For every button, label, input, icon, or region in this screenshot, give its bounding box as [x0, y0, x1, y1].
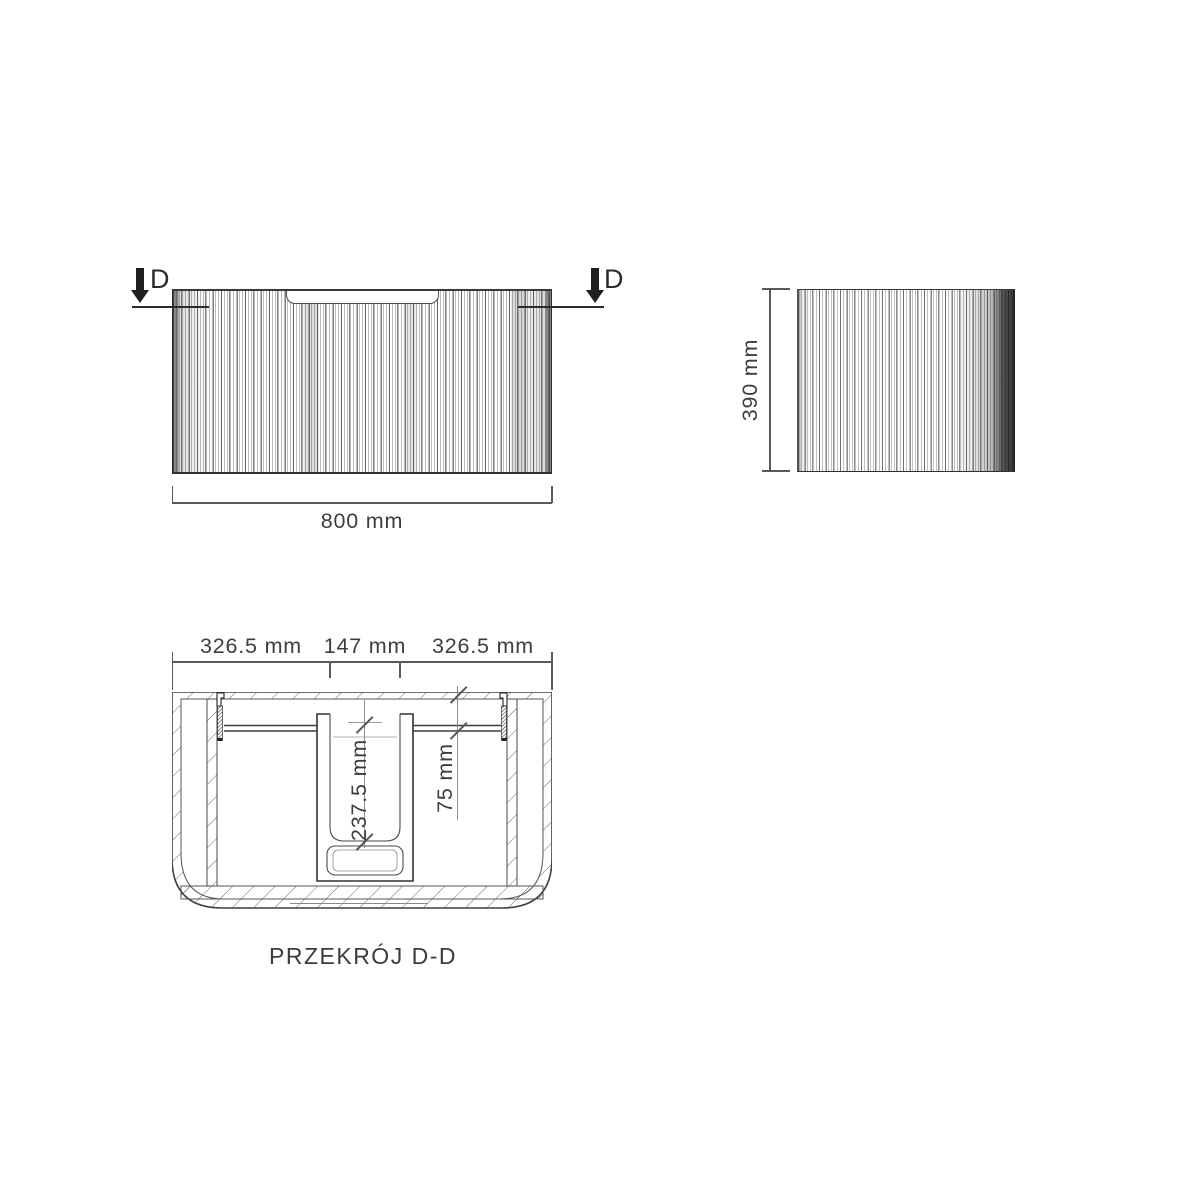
- side-view-fluted-panel: [797, 289, 1015, 472]
- dim-chain-tick-end-left: [172, 652, 174, 690]
- dim-chain-tick-mid-right: [399, 661, 401, 678]
- slide-foot-left: [218, 738, 223, 741]
- section-cut-arrowhead-icon: [586, 290, 604, 303]
- dim-75-line: [457, 686, 458, 820]
- dim-800-label: 800 mm: [262, 509, 462, 534]
- section-cut-line-left: [132, 306, 209, 308]
- slide-strip-right: [502, 706, 507, 740]
- slide-foot-right: [502, 738, 507, 741]
- slide-strip-left: [218, 706, 223, 740]
- section-title: PRZEKRÓJ D-D: [213, 943, 513, 970]
- dim-800-tick-left: [172, 486, 174, 503]
- dim-chain-line: [172, 661, 552, 663]
- section-marker-label-left: D: [150, 266, 170, 293]
- dim-390-tick-bottom: [762, 470, 790, 472]
- technical-drawing-page: D D 800 mm 390 mm: [0, 0, 1200, 1200]
- section-cut-arrowhead-icon: [131, 290, 149, 303]
- section-marker-label-right: D: [604, 266, 624, 293]
- front-view-fluted-panel: [172, 289, 552, 474]
- section-cut-arrow-icon: [136, 268, 144, 290]
- dim-237-label: 237.5 mm: [347, 736, 371, 844]
- dim-right-label: 326.5 mm: [403, 634, 563, 659]
- section-cut-arrow-icon: [591, 268, 599, 290]
- dim-800-line: [172, 502, 552, 504]
- dim-chain-tick-end-right: [551, 652, 553, 690]
- dim-800-tick-right: [551, 486, 553, 503]
- bottom-panel-hatched: [181, 886, 543, 899]
- carcass-wall-left: [207, 699, 217, 886]
- dim-390-tick-top: [762, 288, 790, 290]
- section-cut-line-right: [518, 306, 604, 308]
- handle-recess-notch: [286, 291, 439, 304]
- dim-chain-tick-mid-left: [329, 661, 331, 678]
- dim-75-label: 75 mm: [433, 724, 457, 832]
- carcass-wall-right: [507, 699, 517, 886]
- dim-390-line: [769, 289, 771, 472]
- dim-390-label: 390 mm: [738, 324, 762, 436]
